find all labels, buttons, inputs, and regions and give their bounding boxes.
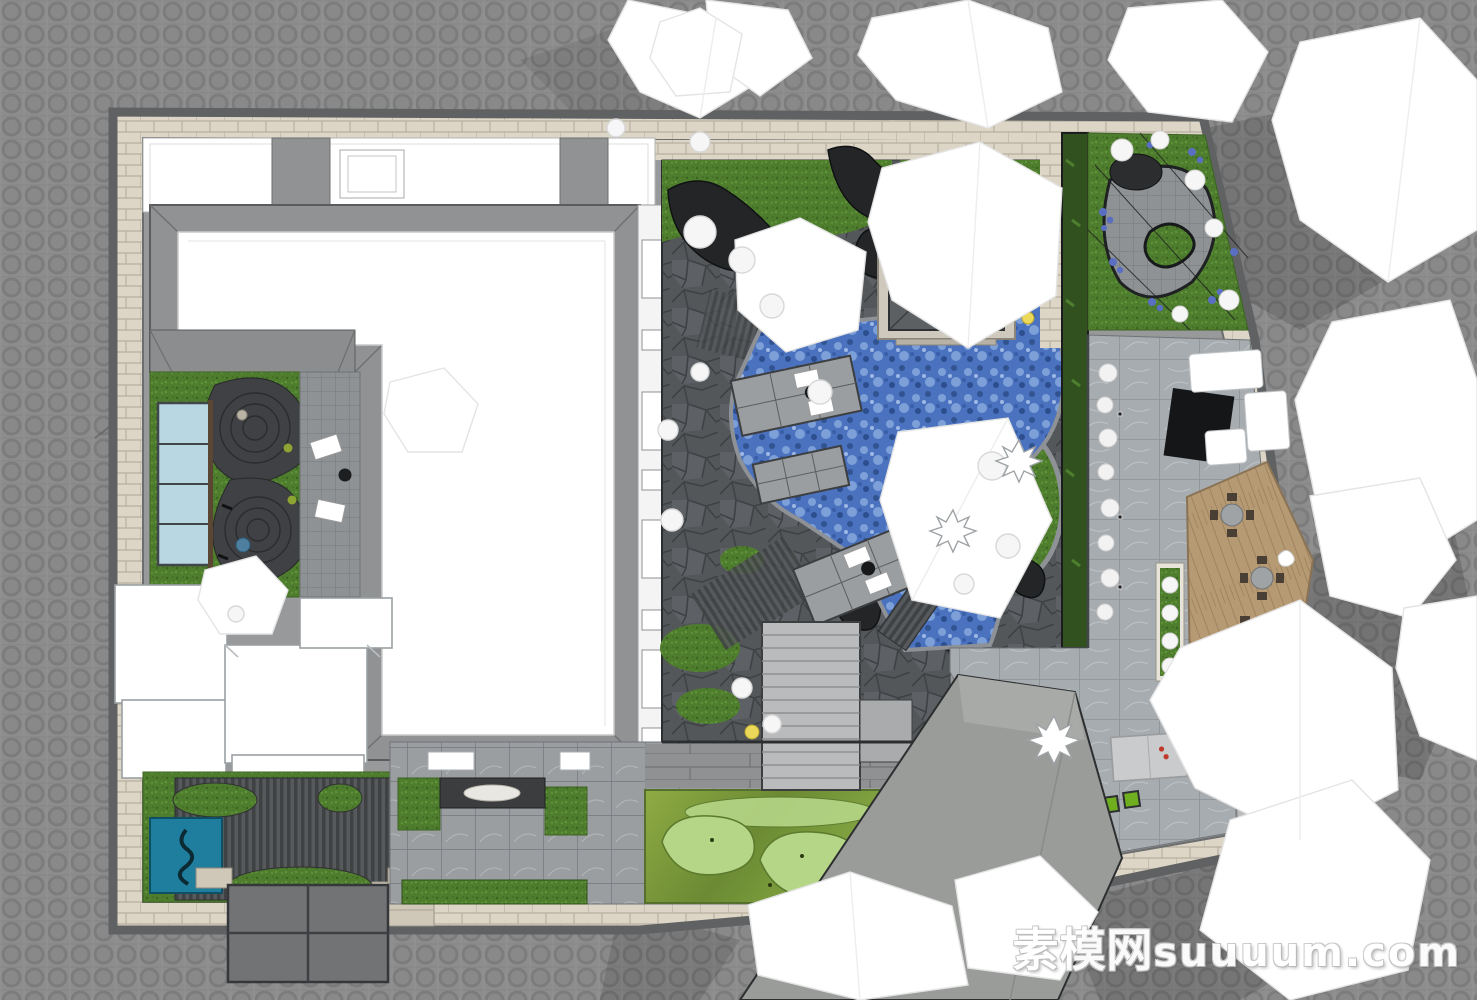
side-table [339,469,352,482]
mini-basin [236,538,250,552]
hedge-wall [1062,133,1088,648]
watermark-site-name-en: suuuum.com [1154,930,1461,976]
water-bowl-feature [440,778,545,808]
lounge-patio [300,372,360,597]
watermark: 素模网suuuum.com [1013,914,1461,980]
north-brick-band [655,140,1090,160]
watermark-site-name-cn: 素模网 [1013,914,1154,980]
window-sill [208,400,213,568]
south-hedge-strip [402,880,587,904]
north-wing-roofs [143,138,655,212]
screenshot-root: 素模网suuuum.com [0,0,1477,1000]
veranda-awning [150,330,355,372]
skylight-outline [340,150,404,198]
site-plan-render [0,0,1477,1000]
